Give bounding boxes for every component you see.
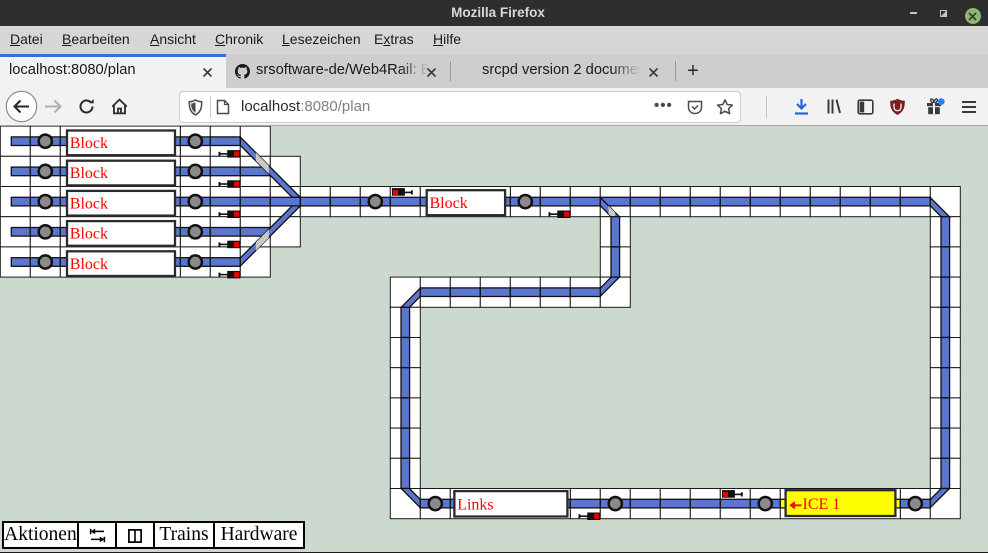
svg-text:Block: Block — [70, 135, 108, 152]
svg-text:Block: Block — [70, 226, 108, 243]
svg-text:Block: Block — [70, 195, 108, 212]
svg-text:ICE 1: ICE 1 — [803, 496, 841, 513]
svg-text:Block: Block — [70, 256, 108, 273]
svg-text:Block: Block — [430, 195, 468, 212]
svg-text:Block: Block — [70, 165, 108, 182]
svg-text:Links: Links — [457, 496, 493, 513]
